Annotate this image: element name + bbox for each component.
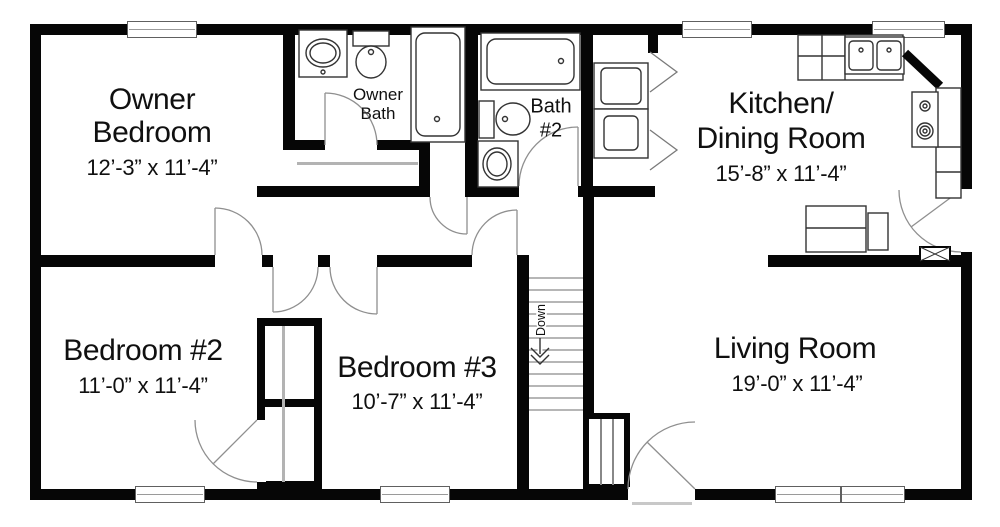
front-door (628, 422, 695, 489)
owner-bath-toilet (353, 31, 389, 78)
floor-plan: Down (0, 0, 1000, 527)
label-bedroom-2-dims: 11’-0” x 11’-4” (78, 373, 207, 399)
label-living-room-dims: 19’-0” x 11’-4” (731, 371, 862, 397)
bedroom-2-door (273, 267, 318, 312)
staircase (529, 278, 583, 410)
bath-2-toilet (479, 101, 530, 138)
label-bedroom-3-dims: 10’-7” x 11’-4” (351, 389, 482, 415)
label-owner-bath-line1: Owner (353, 85, 403, 105)
label-kitchen-line1: Kitchen/ (728, 87, 833, 121)
bath-2-tub (481, 33, 580, 90)
stairs-door (472, 210, 517, 255)
label-bedroom-3: Bedroom #3 (337, 351, 496, 385)
stove (912, 92, 938, 147)
kitchen-counter-right (936, 88, 961, 198)
kitchen-sink (845, 37, 904, 74)
label-living-room: Living Room (714, 332, 876, 366)
kitchen-step-marker (920, 247, 950, 261)
label-owner-bedroom-line2: Bedroom (93, 116, 212, 150)
kitchen-exterior-door (899, 190, 961, 252)
bath-2-sink (478, 141, 518, 187)
label-owner-bath-line2: Bath (361, 104, 396, 124)
hall-door (430, 197, 467, 234)
dining-table (806, 206, 888, 252)
label-bedroom-2: Bedroom #2 (63, 334, 222, 368)
closet-door-bedroom-2 (195, 420, 257, 482)
bedroom-3-door (330, 267, 377, 314)
stairs-down-label: Down (534, 304, 548, 336)
owner-bedroom-door (215, 208, 262, 255)
owner-bath-sink (299, 30, 347, 77)
label-kitchen-line2: Dining Room (696, 122, 865, 156)
floorplan-symbols: Down (0, 0, 1000, 527)
label-owner-bedroom-dims: 12’-3” x 11’-4” (86, 155, 217, 181)
kitchen-corner-wall (905, 53, 940, 86)
laundry-units (594, 63, 648, 158)
laundry-bifold-doors (650, 52, 677, 170)
washer (594, 63, 648, 109)
label-bath-2-line1: Bath (530, 96, 571, 119)
owner-bath-tub (411, 27, 465, 142)
label-owner-bedroom-line1: Owner (109, 83, 195, 117)
label-bath-2-line2: #2 (540, 120, 562, 143)
down-arrow (531, 338, 549, 364)
label-kitchen-dims: 15’-8” x 11’-4” (715, 161, 846, 187)
dryer (594, 109, 648, 158)
